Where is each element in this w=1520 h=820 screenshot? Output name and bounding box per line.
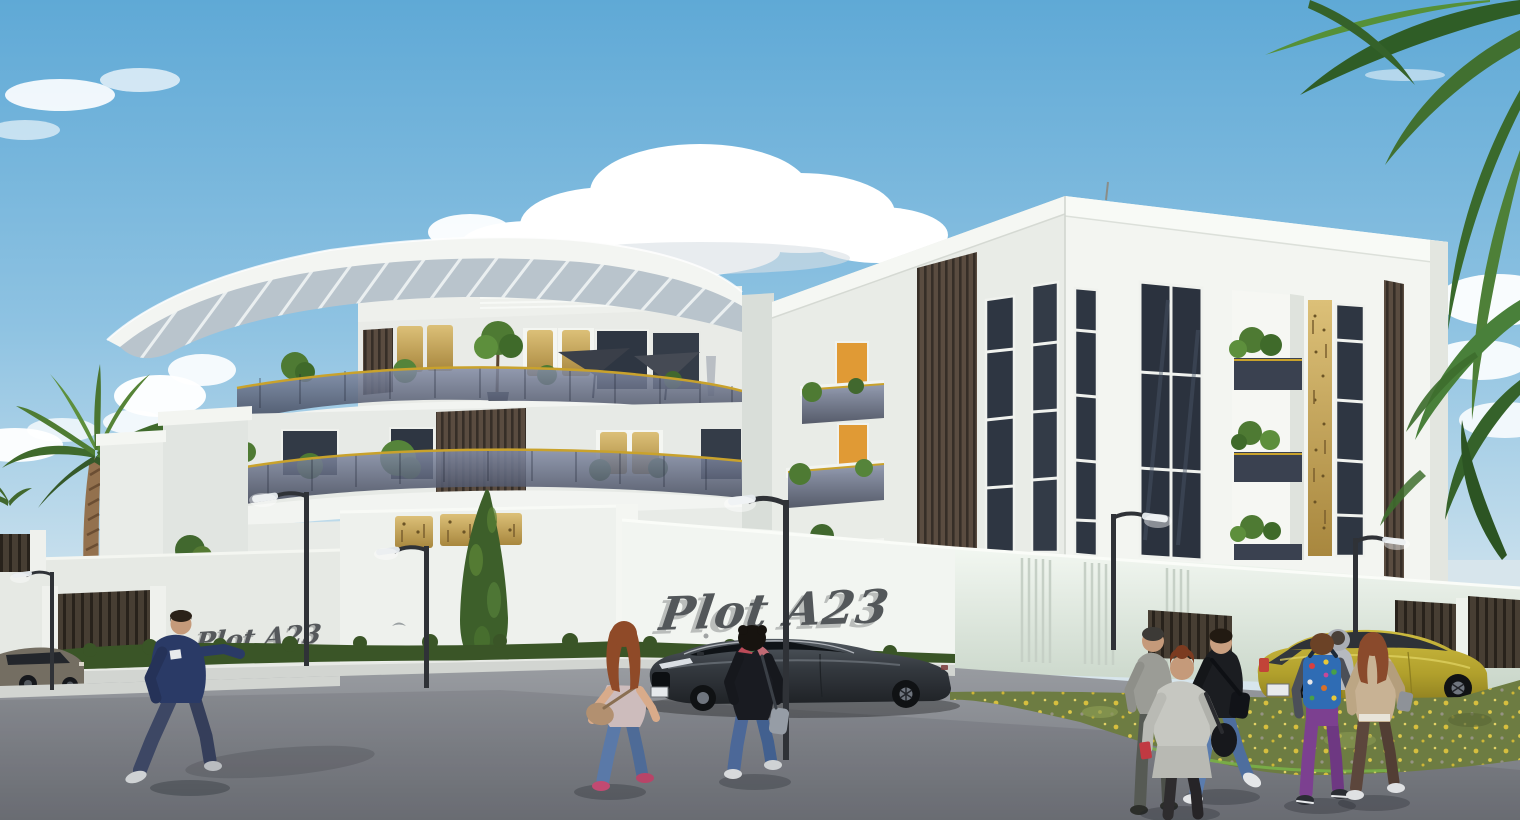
architectural-render-plot-a23: Plot A23 Plot A23 Plot A23 Plot A23	[0, 0, 1520, 820]
license-plate-sedan	[651, 687, 668, 697]
license-plate-hatchback	[1267, 684, 1289, 696]
plot-sign-center-group: Plot A23 Plot A23	[649, 578, 893, 645]
gold-accent-strip	[1308, 300, 1332, 556]
plot-sign-center: Plot A23	[654, 578, 893, 641]
wall-gold-panels	[395, 513, 522, 548]
render-canvas: Plot A23 Plot A23 Plot A23 Plot A23	[0, 0, 1520, 820]
side-gate-far-left	[0, 534, 30, 572]
planter-niche	[1229, 290, 1304, 560]
garage-door-3	[1468, 596, 1520, 668]
right-face-windows	[1075, 282, 1202, 560]
